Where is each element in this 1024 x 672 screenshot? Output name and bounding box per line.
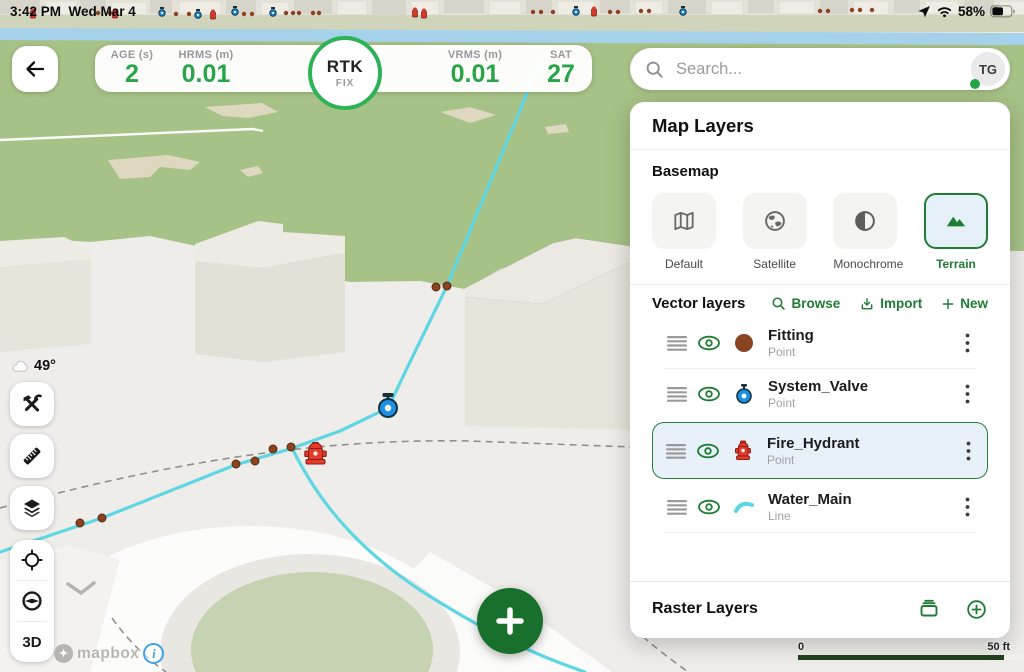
gnss-vrms: VRMS (m) 0.01 <box>429 49 521 87</box>
layer-geometry: Point <box>767 453 955 467</box>
basemap-options: Default Satellite Monochrome Terrain <box>652 193 988 271</box>
statusbar-datetime: 3:42 PM Wed Mar 4 <box>10 4 136 19</box>
new-layer-button[interactable]: New <box>941 296 988 312</box>
mapbox-wordmark: mapbox <box>77 645 139 663</box>
visibility-eye-icon[interactable] <box>692 385 726 403</box>
basemap-label: Terrain <box>924 257 988 271</box>
plus-icon <box>941 297 955 311</box>
new-label: New <box>960 296 988 311</box>
basemap-label: Satellite <box>743 257 807 271</box>
location-arrow-icon <box>917 5 931 19</box>
line-swatch-icon <box>726 496 762 518</box>
plus-icon <box>494 605 526 637</box>
map-layers-panel: Map Layers Basemap Default Satellite Mon… <box>630 102 1010 638</box>
battery-percent: 58% <box>958 4 985 19</box>
visibility-eye-icon[interactable] <box>691 442 725 460</box>
gnss-vrms-value: 0.01 <box>429 61 521 87</box>
basemap-section: Basemap Default Satellite Monochrome <box>630 150 1010 284</box>
account-avatar[interactable]: TG <box>971 52 1005 86</box>
rtk-status-button[interactable]: RTK FIX <box>308 36 382 110</box>
gnss-sat-value: 27 <box>533 61 589 87</box>
view-3d-button[interactable]: 3D <box>10 622 54 662</box>
hammer-wrench-icon <box>20 392 44 416</box>
layer-geometry: Point <box>768 345 954 359</box>
map-nav-controls: 3D <box>10 540 54 662</box>
drag-handle-icon[interactable] <box>662 386 692 402</box>
map-scale-bar: 0 50 ft <box>798 641 1024 660</box>
panel-title: Map Layers <box>630 102 1010 150</box>
globe-icon <box>762 208 788 234</box>
rtk-label: RTK <box>327 57 363 77</box>
add-raster-icon[interactable] <box>965 598 988 621</box>
search-input[interactable] <box>674 59 971 80</box>
scale-line <box>798 655 1024 660</box>
import-label: Import <box>880 296 922 311</box>
kebab-menu-icon[interactable] <box>954 497 980 517</box>
visibility-eye-icon[interactable] <box>692 498 726 516</box>
browse-label: Browse <box>791 296 840 311</box>
add-feature-fab[interactable] <box>477 588 543 654</box>
hydrant-swatch-icon <box>725 440 761 462</box>
folded-map-icon <box>671 208 697 234</box>
visibility-eye-icon[interactable] <box>692 334 726 352</box>
locate-button[interactable] <box>10 540 54 580</box>
kebab-menu-icon[interactable] <box>954 384 980 404</box>
layer-geometry: Line <box>768 509 954 523</box>
search-bar[interactable]: TG <box>630 48 1010 90</box>
mountains-icon <box>943 208 969 234</box>
import-layer-button[interactable]: Import <box>859 296 922 312</box>
cloud-icon <box>11 359 30 373</box>
compass-button[interactable] <box>10 581 54 621</box>
vector-layers-list: Fitting Point System_Val <box>652 318 988 533</box>
valve-swatch-icon <box>726 383 762 405</box>
crosshair-icon <box>20 548 44 572</box>
presence-dot <box>970 79 980 89</box>
drag-handle-icon[interactable] <box>661 443 691 459</box>
wifi-icon <box>936 5 953 18</box>
kebab-menu-icon[interactable] <box>955 441 981 461</box>
layer-name: Water_Main <box>768 491 954 508</box>
search-icon <box>771 296 786 311</box>
download-tray-icon <box>859 296 875 312</box>
half-circle-icon <box>852 208 878 234</box>
browse-layers-button[interactable]: Browse <box>771 296 840 312</box>
statusbar-date: Wed Mar 4 <box>69 4 136 19</box>
mapbox-logo-icon: ✦ <box>54 644 73 663</box>
kebab-menu-icon[interactable] <box>954 333 980 353</box>
statusbar-time: 3:42 PM <box>10 4 61 19</box>
basemap-section-label: Basemap <box>652 163 988 180</box>
gnss-hrms: HRMS (m) 0.01 <box>163 49 249 87</box>
vector-layers-section: Vector layers Browse Import New <box>630 285 1010 533</box>
search-icon <box>645 60 664 79</box>
layer-name: Fire_Hydrant <box>767 435 955 452</box>
tools-button[interactable] <box>10 382 54 426</box>
layers-button[interactable] <box>10 486 54 530</box>
gnss-age-value: 2 <box>103 61 161 87</box>
scale-max-label: 50 ft <box>987 641 1010 653</box>
view-3d-label: 3D <box>22 634 41 651</box>
statusbar-right: 58% <box>917 4 1016 19</box>
layer-name: System_Valve <box>768 378 954 395</box>
layer-row-fitting[interactable]: Fitting Point <box>654 318 986 368</box>
gnss-hrms-value: 0.01 <box>163 61 249 87</box>
stacked-layers-icon <box>20 496 44 520</box>
raster-layers-section: Raster Layers <box>630 581 1010 638</box>
drag-handle-icon[interactable] <box>662 335 692 351</box>
layer-name: Fitting <box>768 327 954 344</box>
drag-handle-icon[interactable] <box>662 499 692 515</box>
layer-row-fire-hydrant[interactable]: Fire_Hydrant Point <box>652 422 988 479</box>
weather-temp: 49° <box>34 358 56 374</box>
layer-row-system-valve[interactable]: System_Valve Point <box>654 369 986 419</box>
back-button[interactable] <box>12 46 58 92</box>
skyline-strip <box>0 0 1024 32</box>
info-icon[interactable]: i <box>143 643 164 664</box>
basemap-option-satellite[interactable]: Satellite <box>743 193 807 271</box>
gnss-age: AGE (s) 2 <box>103 49 161 87</box>
raster-section-label: Raster Layers <box>652 600 917 618</box>
rtk-fix-label: FIX <box>336 78 355 89</box>
ruler-icon <box>20 444 44 468</box>
fitting-swatch-icon <box>726 332 762 354</box>
scale-min-label: 0 <box>798 641 804 653</box>
arrow-left-icon <box>23 57 47 81</box>
compass-icon <box>20 589 44 613</box>
map-attribution: ✦ mapbox i <box>54 643 164 664</box>
basemap-option-terrain[interactable]: Terrain <box>924 193 988 271</box>
layer-row-water-main[interactable]: Water_Main Line <box>654 482 986 532</box>
basemap-label: Monochrome <box>833 257 897 271</box>
vector-section-label: Vector layers <box>652 295 771 312</box>
gnss-sat: SAT 27 <box>533 49 589 87</box>
app-screen: { "status_bar": { "time": "3:42 PM", "da… <box>0 0 1024 672</box>
basemap-label: Default <box>652 257 716 271</box>
basemap-option-default[interactable]: Default <box>652 193 716 271</box>
battery-icon <box>990 5 1016 18</box>
row-divider <box>664 532 976 533</box>
measure-button[interactable] <box>10 434 54 478</box>
weather-widget[interactable]: 49° <box>11 358 56 374</box>
archive-box-icon[interactable] <box>917 597 941 621</box>
layer-geometry: Point <box>768 396 954 410</box>
basemap-option-monochrome[interactable]: Monochrome <box>833 193 897 271</box>
